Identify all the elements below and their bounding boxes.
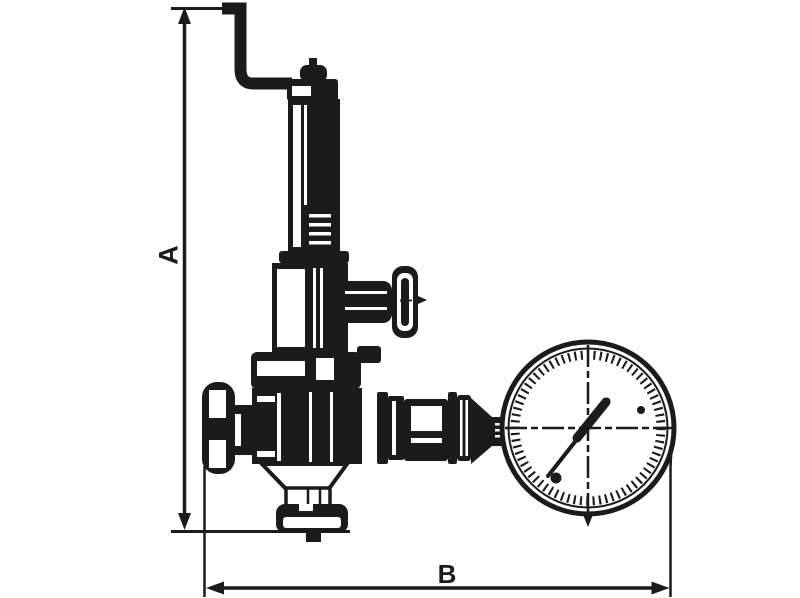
outlet-stub bbox=[306, 533, 321, 542]
valve-body bbox=[252, 388, 362, 506]
hex-facet bbox=[257, 361, 305, 376]
boss-groove bbox=[345, 307, 387, 310]
bonnet-line bbox=[320, 268, 323, 348]
knurled-ring bbox=[457, 395, 471, 461]
bonnet bbox=[272, 263, 348, 353]
bonnet-line bbox=[313, 268, 316, 348]
needle-counterweight bbox=[551, 473, 562, 484]
thread-mark bbox=[309, 232, 331, 236]
pressure-gauge bbox=[502, 342, 678, 527]
lever-pipe bbox=[222, 9, 292, 84]
bottom-outlet bbox=[276, 504, 348, 542]
housing-highlight bbox=[293, 105, 301, 247]
body-funnel bbox=[262, 464, 347, 490]
body-line bbox=[309, 392, 312, 462]
reducer-cone bbox=[471, 398, 492, 464]
wheel-boss bbox=[340, 281, 392, 323]
union-ring bbox=[448, 392, 457, 464]
union-window bbox=[411, 406, 442, 431]
thread-mark bbox=[309, 241, 331, 245]
body-groove bbox=[257, 396, 275, 402]
arrow-down-icon bbox=[178, 513, 191, 530]
dial-marker-dot bbox=[637, 406, 645, 414]
bonnet-window bbox=[277, 269, 305, 347]
flange-window bbox=[283, 517, 341, 528]
handwheel-core bbox=[401, 278, 409, 326]
body-line bbox=[330, 392, 333, 462]
hex-flange bbox=[251, 346, 381, 389]
adjusting-screw-line bbox=[304, 105, 307, 205]
boss-groove bbox=[345, 291, 387, 294]
inlet-cap-window bbox=[209, 390, 226, 418]
ring-slot bbox=[392, 401, 396, 455]
inlet-cap-window bbox=[209, 440, 226, 468]
flange-notch bbox=[299, 504, 313, 511]
cap-window bbox=[292, 86, 311, 96]
spring-housing bbox=[279, 99, 349, 263]
technical-drawing-canvas: A B bbox=[0, 0, 800, 598]
union-groove bbox=[411, 438, 442, 443]
body-groove bbox=[257, 451, 275, 457]
housing-flange bbox=[279, 251, 349, 263]
gauge-connection bbox=[377, 392, 512, 464]
knurl-slot bbox=[466, 400, 469, 456]
gauge-bottom-stub bbox=[582, 512, 594, 527]
body-line bbox=[277, 393, 281, 461]
test-lever bbox=[222, 9, 292, 84]
bonnet-cap bbox=[287, 58, 338, 101]
knurl-slot bbox=[460, 400, 463, 456]
dimension-a-label: A bbox=[154, 245, 184, 265]
thread-mark bbox=[309, 223, 331, 227]
dimension-b-extension-right bbox=[671, 432, 674, 597]
arrow-left-icon bbox=[206, 582, 224, 595]
valve-dimension-drawing: A B bbox=[0, 0, 800, 598]
thread-mark bbox=[309, 214, 331, 218]
dimension-b-label: B bbox=[438, 559, 457, 589]
hex-tab bbox=[357, 346, 381, 363]
union-ring bbox=[377, 392, 388, 464]
arrow-right-icon bbox=[652, 582, 670, 595]
hex-facet bbox=[316, 358, 334, 380]
